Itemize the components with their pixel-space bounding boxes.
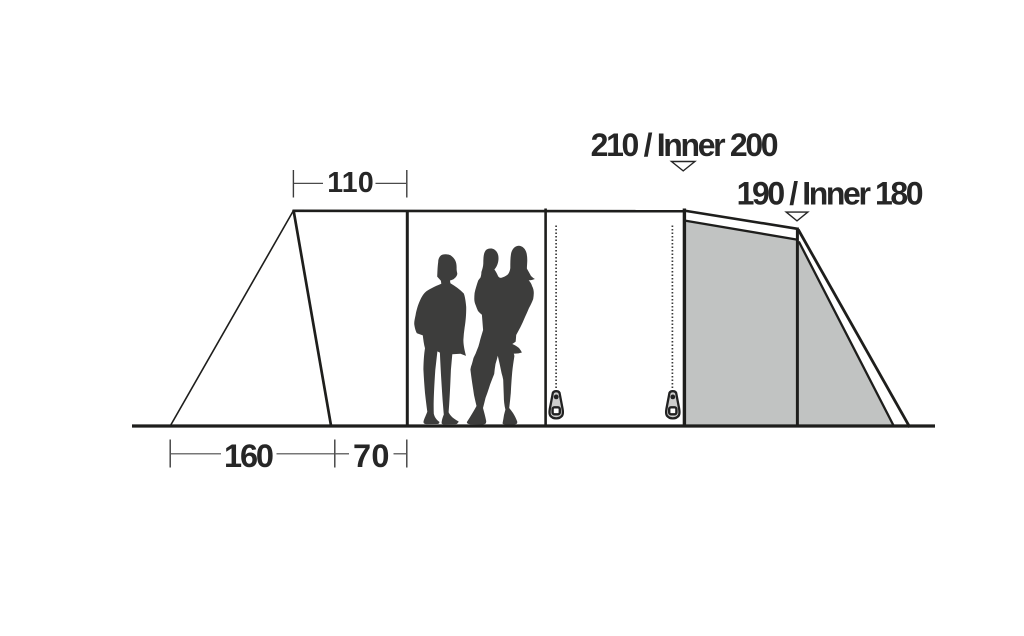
svg-text:110: 110 <box>327 167 374 199</box>
svg-text:190 / Inner 180: 190 / Inner 180 <box>737 176 924 212</box>
svg-text:70: 70 <box>353 438 390 474</box>
svg-text:210 / Inner 200: 210 / Inner 200 <box>591 127 779 163</box>
svg-text:160: 160 <box>224 438 274 474</box>
